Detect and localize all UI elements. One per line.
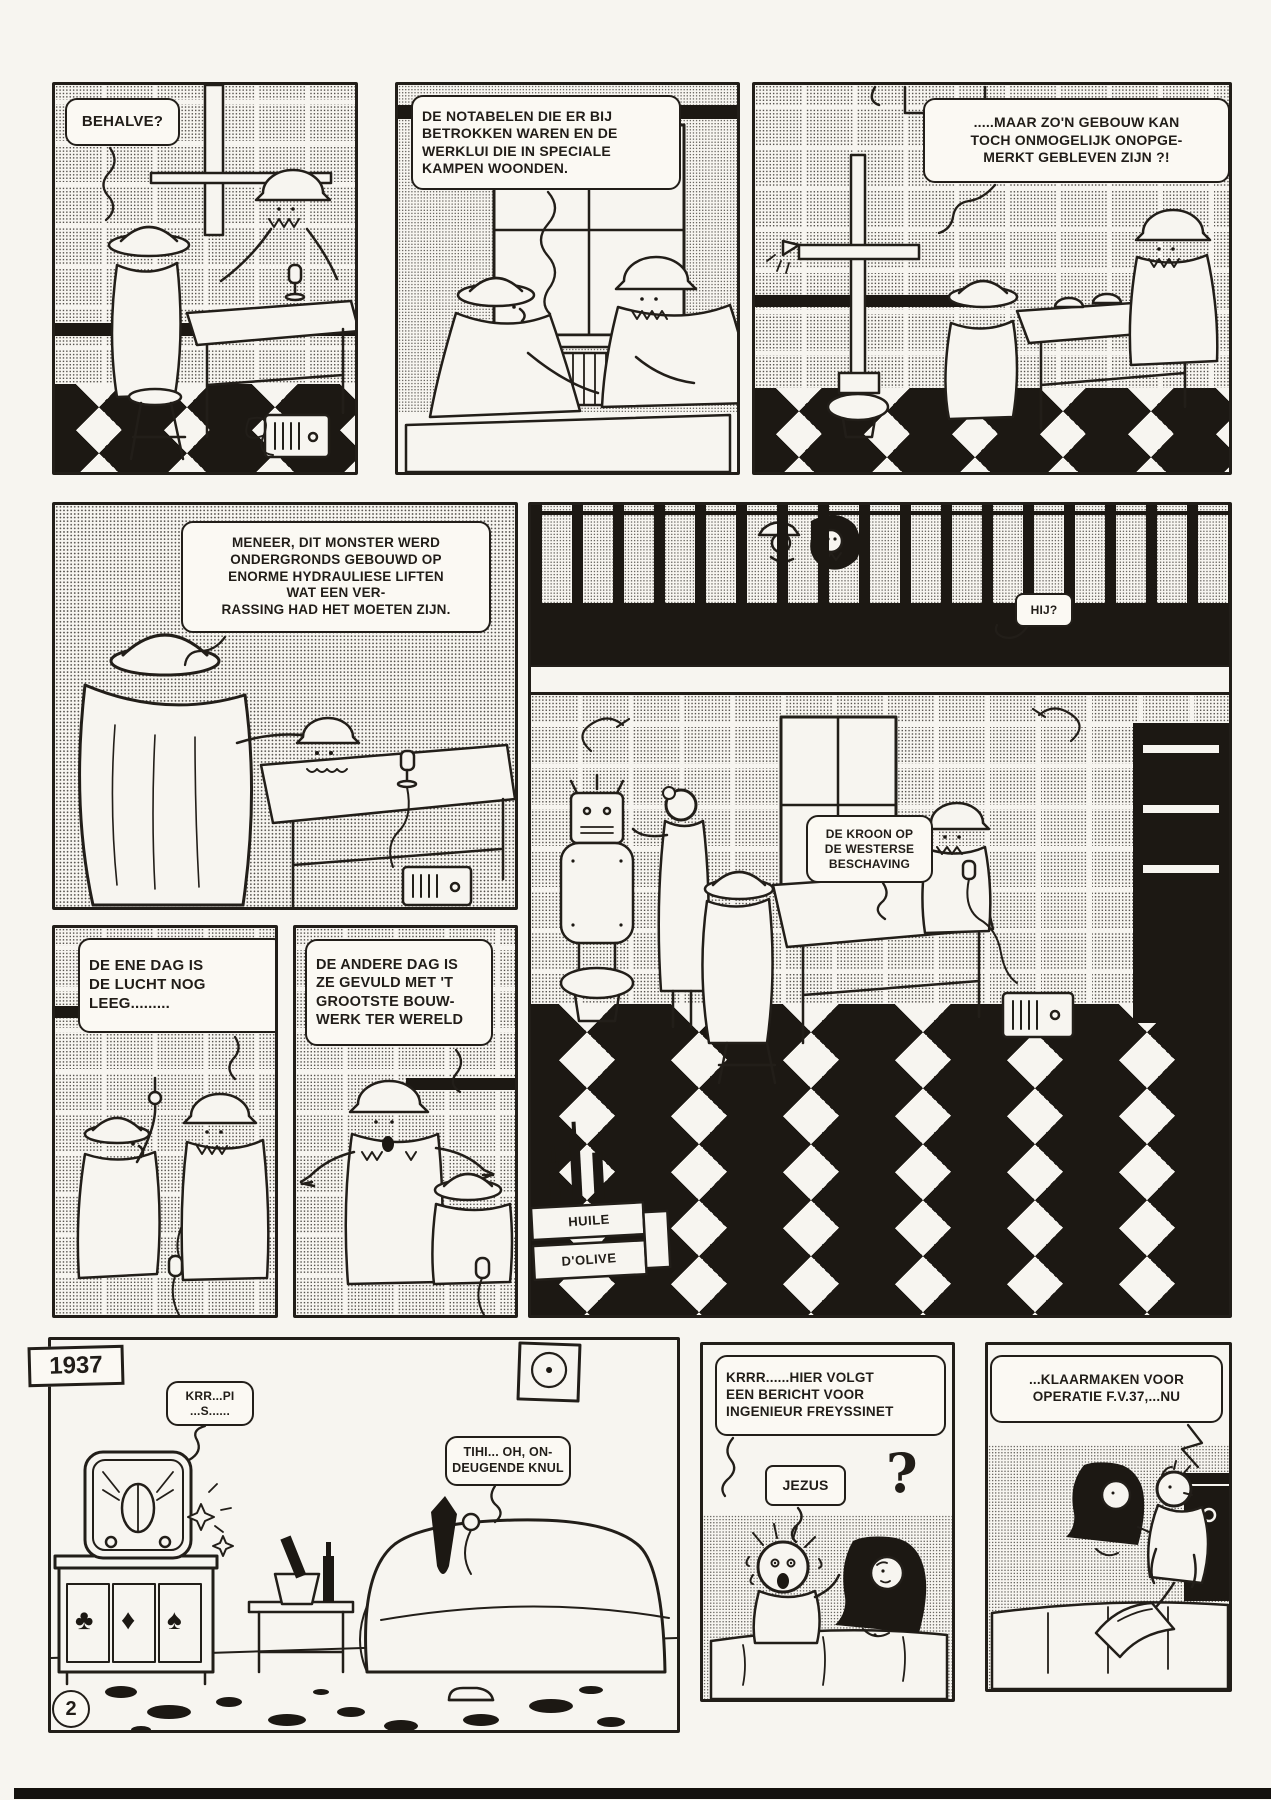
page-number-badge: 2	[52, 1690, 90, 1728]
bubble-jezus: JEZUS	[765, 1465, 846, 1506]
fedora-man-figure	[109, 227, 189, 397]
tape-recorder-drawing	[403, 867, 471, 905]
panel-10: ...KLAARMAKEN VOOR OPERATIE F.V.37,...NU	[985, 1342, 1232, 1692]
shower-cross-drawing	[767, 155, 919, 375]
panel-9: KRRR......HIER VOLGT EEN BERICHT VOOR IN…	[700, 1342, 955, 1702]
robot-figure	[561, 775, 633, 973]
fedora-man-figure	[78, 1078, 161, 1278]
bubble-klaarmaken: ...KLAARMAKEN VOOR OPERATIE F.V.37,...NU	[990, 1355, 1223, 1423]
wall-sconce-left	[582, 718, 629, 751]
panel-6: DE ENE DAG IS DE LUCHT NOG LEEG.........	[52, 925, 278, 1318]
dentist-figure	[633, 787, 709, 1027]
fedora-man-figure	[945, 281, 1017, 419]
balcony-bars	[531, 505, 1229, 603]
bubble-hij: HIJ?	[1015, 593, 1073, 627]
radio-speech-tail	[722, 1438, 734, 1496]
speech-tail	[939, 185, 995, 233]
pith-helmet-man-figure	[221, 170, 337, 281]
scan-edge-bar	[14, 1788, 1271, 1799]
speech-tail	[1182, 1425, 1202, 1467]
pith-helmet-man-figure	[182, 1094, 269, 1280]
speech-tail	[453, 1050, 461, 1092]
tape-recorder-drawing	[246, 415, 329, 457]
panel-5: HIJ? DE KROON OP DE WESTERSE BESCHAVING …	[528, 502, 1232, 1318]
panel-2: DE NOTABELEN DIE ER BIJ BETROKKEN WAREN …	[395, 82, 740, 475]
radio-drawing	[85, 1452, 191, 1558]
spade-suit-icon: ♠	[167, 1606, 182, 1634]
shoe-drawing	[449, 1688, 493, 1700]
bubble-andere-dag: DE ANDERE DAG IS ZE GEVULD MET 'T GROOTS…	[305, 939, 493, 1046]
jezus-speech-tail	[792, 1508, 802, 1542]
pith-helmet-man-figure	[1130, 210, 1217, 365]
tape-recorder-drawing	[1003, 993, 1073, 1037]
diamond-suit-icon: ♦	[121, 1606, 135, 1634]
champagne-table-drawing	[249, 1536, 353, 1673]
table-drawing	[261, 745, 515, 907]
woman-figure	[835, 1537, 926, 1637]
bubble-behalve: BEHALVE?	[65, 98, 180, 146]
bubble-gebouw: .....MAAR ZO'N GEBOUW KAN TOCH ONMOGELIJ…	[923, 98, 1230, 183]
fedora-man-figure	[432, 1174, 512, 1284]
club-suit-icon: ♣	[75, 1606, 93, 1634]
microphone-drawing	[169, 1228, 182, 1315]
wall-sconce-right	[1033, 708, 1080, 741]
rug-spots	[105, 1686, 625, 1730]
comic-page: BEHALVE?	[0, 0, 1271, 1800]
bubble-ene-dag: DE ENE DAG IS DE LUCHT NOG LEEG.........	[78, 938, 278, 1033]
speech-tail	[229, 1037, 238, 1079]
startled-man-figure	[747, 1524, 840, 1643]
bubble-monster: MENEER, DIT MONSTER WERD ONDERGRONDS GEB…	[181, 521, 491, 633]
bubble-radio-krr: KRR...PI ...S......	[166, 1381, 254, 1426]
panel-7: DE ANDERE DAG IS ZE GEVULD MET 'T GROOTS…	[293, 925, 518, 1318]
bubble-tihi: TIHI... OH, ON- DEUGENDE KNUL	[445, 1436, 571, 1486]
microphone-drawing	[476, 1258, 489, 1315]
picture-frame-drawing	[518, 1343, 580, 1401]
panel-5-art	[531, 505, 1229, 1315]
fedora-man-figure	[702, 872, 775, 1083]
year-badge: 1937	[27, 1345, 124, 1387]
toilet-drawing	[561, 968, 633, 1021]
question-mark: ?	[886, 1441, 918, 1505]
bubble-notabelen: DE NOTABELEN DIE ER BIJ BETROKKEN WAREN …	[411, 95, 681, 190]
bubble-kroon: DE KROON OP DE WESTERSE BESCHAVING	[806, 815, 933, 883]
table-drawing	[406, 415, 730, 472]
speech-tail	[103, 148, 114, 220]
bed-drawing	[711, 1630, 947, 1699]
sofa-drawing	[360, 1496, 669, 1672]
balcony-rail	[531, 511, 1229, 515]
spark-stars	[188, 1484, 233, 1556]
panel-3: .....MAAR ZO'N GEBOUW KAN TOCH ONMOGELIJ…	[752, 82, 1232, 475]
stool-drawing	[129, 389, 185, 459]
door-drawing	[1133, 723, 1229, 1023]
radio-speech-tail	[189, 1426, 205, 1460]
panel-1: BEHALVE?	[52, 82, 358, 475]
panel-8: ♣ ♦ ♠ KRR...PI ...S...... TIHI... OH, ON…	[48, 1337, 680, 1733]
sofa-speech-tail	[491, 1486, 500, 1522]
panel-8-art	[51, 1340, 677, 1730]
bubble-krrr-bericht: KRRR......HIER VOLGT EEN BERICHT VOOR IN…	[715, 1355, 946, 1436]
microphone-drawing	[286, 265, 304, 300]
toilet-drawing	[828, 373, 888, 437]
panel-4: MENEER, DIT MONSTER WERD ONDERGRONDS GEB…	[52, 502, 518, 910]
